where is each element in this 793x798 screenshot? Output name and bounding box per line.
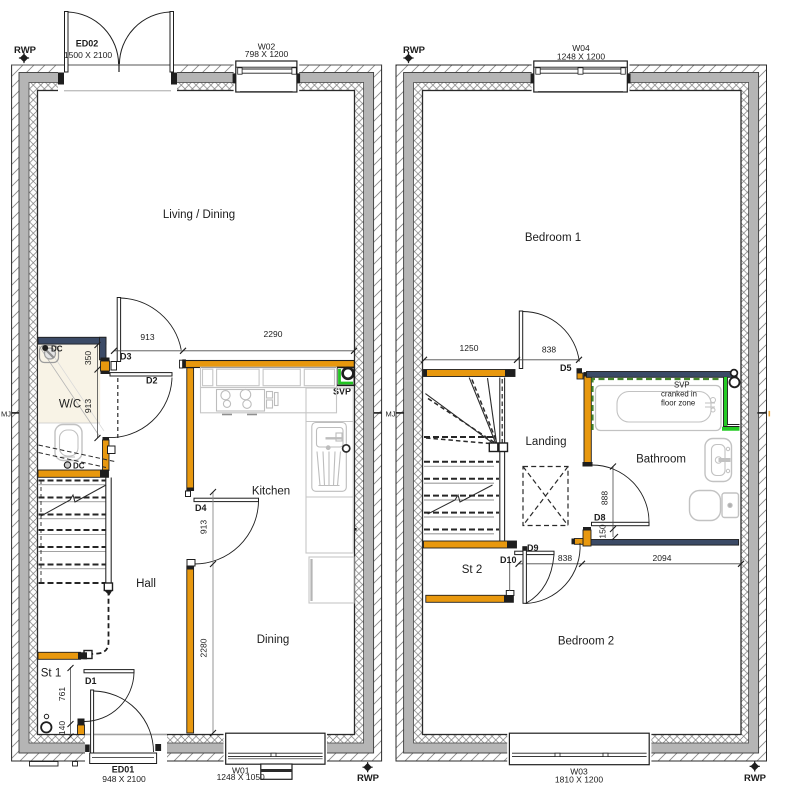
svg-text:DC: DC — [51, 345, 63, 354]
svg-text:RWP: RWP — [744, 773, 767, 784]
svg-text:798 X 1200: 798 X 1200 — [245, 49, 289, 59]
svg-text:Living / Dining: Living / Dining — [163, 209, 235, 221]
svg-text:350: 350 — [83, 351, 93, 365]
svg-text:948 X 2100: 948 X 2100 — [102, 774, 146, 784]
svg-text:RWP: RWP — [403, 45, 426, 56]
svg-text:Landing: Landing — [526, 436, 567, 448]
svg-text:1248 X 1050: 1248 X 1050 — [217, 772, 265, 782]
svg-text:1250: 1250 — [460, 343, 479, 353]
svg-text:St 2: St 2 — [462, 564, 482, 576]
svg-text:838: 838 — [558, 553, 572, 563]
svg-text:D1: D1 — [85, 676, 97, 686]
svg-text:1500 X 2100: 1500 X 2100 — [64, 50, 112, 60]
svg-text:floor zone: floor zone — [661, 399, 695, 408]
svg-text:ED01: ED01 — [112, 765, 135, 775]
svg-text:D5: D5 — [560, 363, 572, 373]
svg-text:St 1: St 1 — [41, 668, 61, 680]
svg-text:761: 761 — [57, 687, 67, 701]
svg-text:Dining: Dining — [257, 634, 290, 646]
svg-text:838: 838 — [542, 345, 556, 355]
svg-text:MJ: MJ — [386, 410, 396, 419]
svg-text:2280: 2280 — [199, 638, 209, 657]
svg-text:Hall: Hall — [136, 578, 156, 590]
svg-text:D10: D10 — [500, 555, 517, 565]
svg-text:W/C: W/C — [59, 399, 81, 411]
svg-text:Bedroom 1: Bedroom 1 — [525, 232, 581, 244]
svg-text:1248 X 1200: 1248 X 1200 — [557, 52, 605, 62]
svg-text:150: 150 — [598, 524, 608, 538]
svg-text:MJ: MJ — [1, 410, 11, 419]
svg-text:913: 913 — [199, 520, 209, 534]
svg-text:D8: D8 — [594, 513, 606, 523]
svg-text:913: 913 — [140, 332, 154, 342]
svg-text:1810 X 1200: 1810 X 1200 — [555, 775, 603, 785]
svg-text:D9: D9 — [527, 543, 539, 553]
svg-text:ED02: ED02 — [76, 39, 99, 49]
svg-text:913: 913 — [83, 399, 93, 413]
svg-text:Bedroom 2: Bedroom 2 — [558, 636, 614, 648]
svg-text:cranked in: cranked in — [661, 390, 697, 399]
svg-text:D3: D3 — [120, 352, 132, 362]
svg-text:D4: D4 — [195, 503, 207, 513]
svg-text:D2: D2 — [146, 376, 158, 386]
svg-text:2094: 2094 — [653, 553, 672, 563]
svg-text:RWP: RWP — [357, 773, 380, 784]
svg-text:888: 888 — [600, 491, 610, 505]
svg-text:Bathroom: Bathroom — [636, 454, 686, 466]
svg-text:140: 140 — [57, 721, 67, 735]
svg-text:2290: 2290 — [264, 329, 283, 339]
svg-text:SVP: SVP — [674, 381, 690, 390]
svg-text:RWP: RWP — [14, 45, 37, 56]
svg-text:Kitchen: Kitchen — [252, 486, 290, 498]
